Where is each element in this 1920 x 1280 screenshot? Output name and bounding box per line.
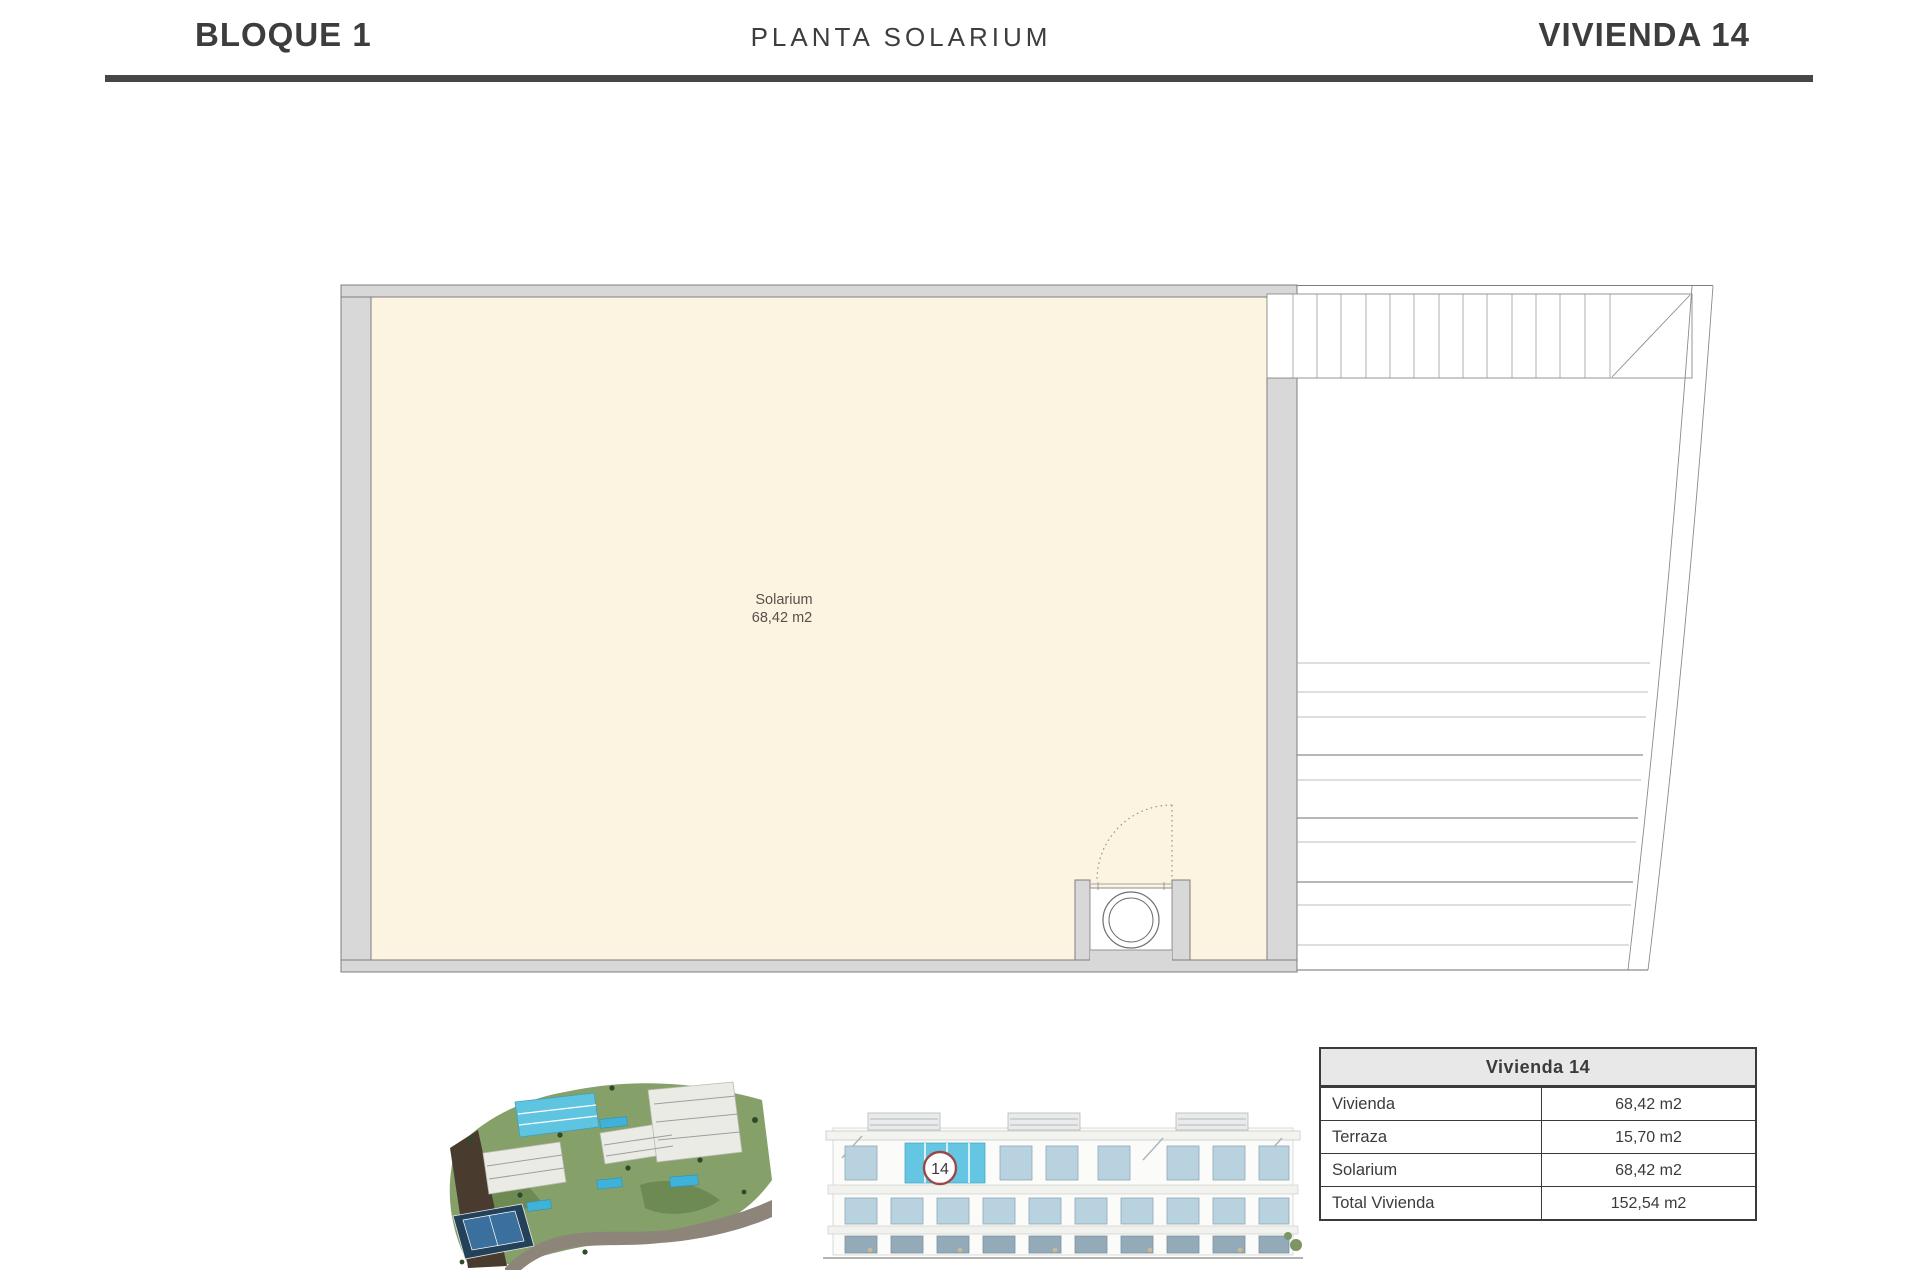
row-label: Terraza [1321, 1121, 1542, 1153]
stair-lower-run [1297, 663, 1650, 970]
unit-badge: 14 [924, 1152, 956, 1184]
solarium-room [371, 297, 1267, 960]
area-table-title: Vivienda 14 [1321, 1049, 1755, 1087]
right-boundary-curves [1628, 286, 1713, 970]
stair-upper-run [1267, 294, 1692, 378]
site-render-thumbnail [450, 1082, 772, 1270]
building-elevation: 14 [823, 1113, 1303, 1258]
table-row: Vivienda 68,42 m2 [1321, 1087, 1755, 1120]
unit-badge-number: 14 [931, 1161, 949, 1178]
floor-plan: Solarium 68,42 m2 [341, 285, 1713, 972]
roof-pergolas [868, 1113, 1248, 1130]
row-value: 68,42 m2 [1542, 1088, 1755, 1120]
room-name-text: Solarium [755, 592, 812, 608]
table-row: Terraza 15,70 m2 [1321, 1120, 1755, 1153]
room-area-text: 68,42 m2 [752, 610, 812, 626]
row-label: Vivienda [1321, 1088, 1542, 1120]
row-value: 15,70 m2 [1542, 1121, 1755, 1153]
table-row: Solarium 68,42 m2 [1321, 1153, 1755, 1186]
table-row: Total Vivienda 152,54 m2 [1321, 1186, 1755, 1219]
area-table: Vivienda 14 Vivienda 68,42 m2 Terraza 15… [1319, 1047, 1757, 1221]
row-label: Solarium [1321, 1154, 1542, 1186]
tub-circle-outer [1103, 892, 1159, 948]
plan-sheet-page: { "header": { "block": "BLOQUE 1", "plan… [0, 0, 1920, 1280]
row-value: 152,54 m2 [1542, 1187, 1755, 1219]
utility-enclosure [1075, 880, 1190, 962]
row-value: 68,42 m2 [1542, 1154, 1755, 1186]
row-label: Total Vivienda [1321, 1187, 1542, 1219]
